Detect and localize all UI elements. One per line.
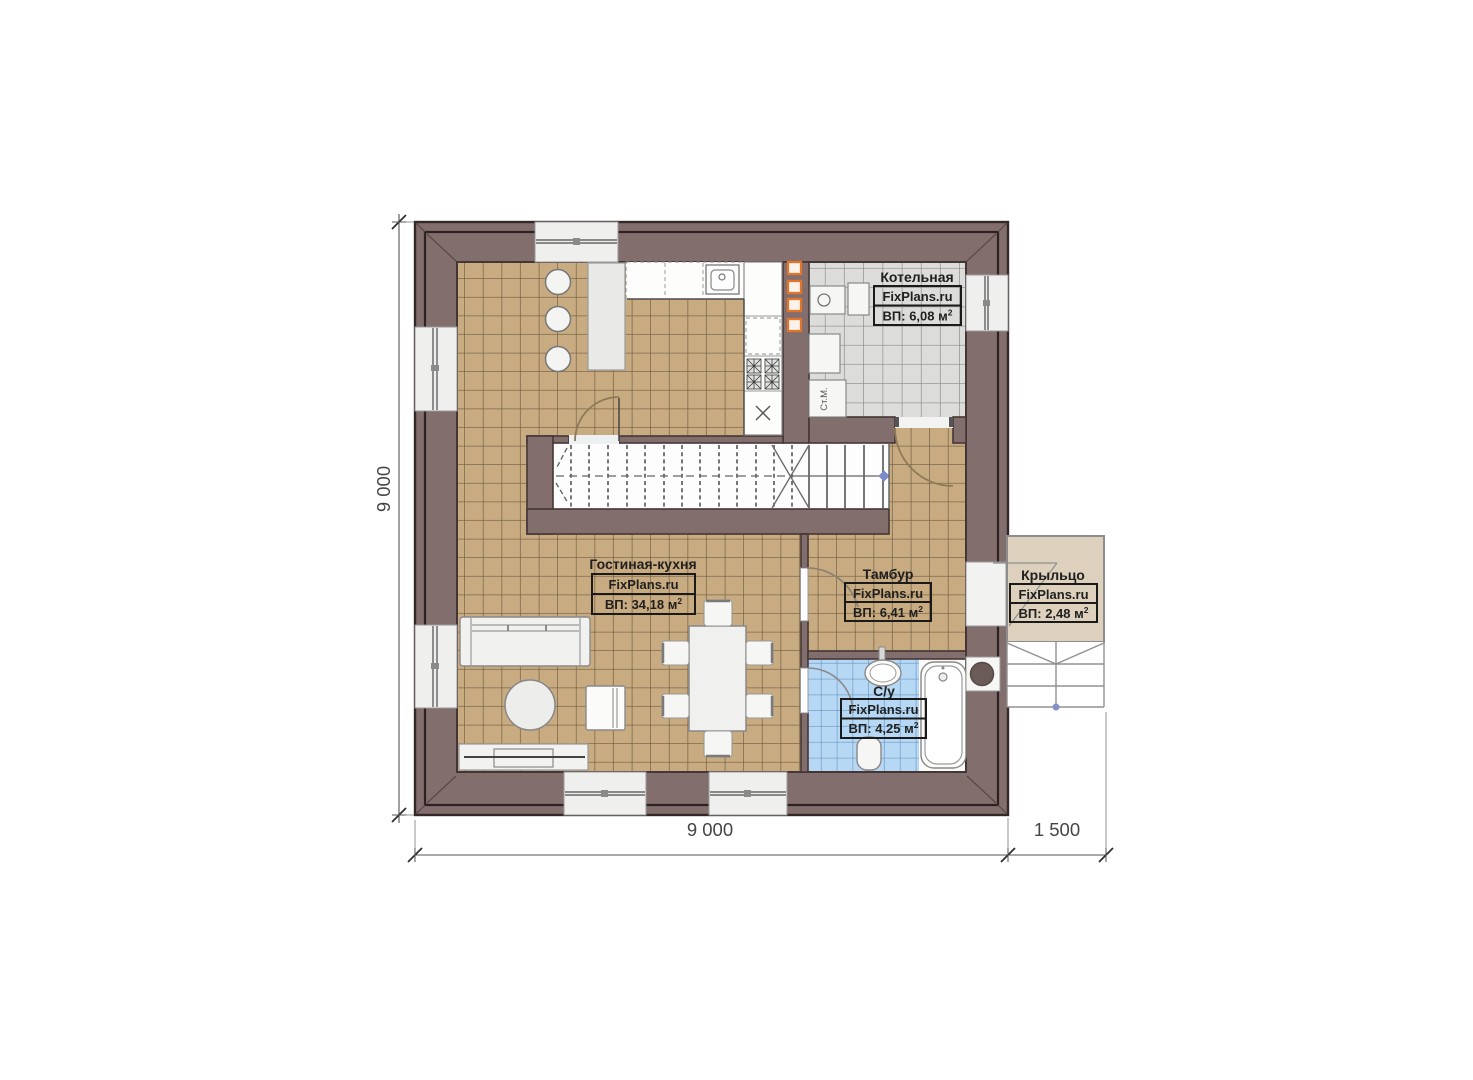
svg-text:ВП: 2,48 м2: ВП: 2,48 м2 xyxy=(1019,605,1089,621)
svg-text:FixPlans.ru: FixPlans.ru xyxy=(882,289,952,304)
svg-text:С/у: С/у xyxy=(873,683,895,699)
svg-text:Ст.М.: Ст.М. xyxy=(819,387,830,410)
svg-text:Котельная: Котельная xyxy=(880,269,953,285)
svg-text:FixPlans.ru: FixPlans.ru xyxy=(848,702,918,717)
svg-text:9 000: 9 000 xyxy=(373,466,394,512)
svg-text:FixPlans.ru: FixPlans.ru xyxy=(1018,587,1088,602)
svg-text:ВП: 6,41 м2: ВП: 6,41 м2 xyxy=(853,604,923,620)
svg-text:Тамбур: Тамбур xyxy=(863,566,914,582)
svg-text:Крыльцо: Крыльцо xyxy=(1021,567,1085,583)
svg-text:ВП: 34,18 м2: ВП: 34,18 м2 xyxy=(605,596,682,612)
svg-text:ВП: 6,08 м2: ВП: 6,08 м2 xyxy=(883,308,953,324)
svg-text:FixPlans.ru: FixPlans.ru xyxy=(608,577,678,592)
svg-text:9 000: 9 000 xyxy=(687,819,733,840)
svg-text:1 500: 1 500 xyxy=(1034,819,1080,840)
svg-text:Гостиная-кухня: Гостиная-кухня xyxy=(589,556,696,572)
svg-text:ВП: 4,25 м2: ВП: 4,25 м2 xyxy=(849,720,919,736)
svg-text:FixPlans.ru: FixPlans.ru xyxy=(853,586,923,601)
